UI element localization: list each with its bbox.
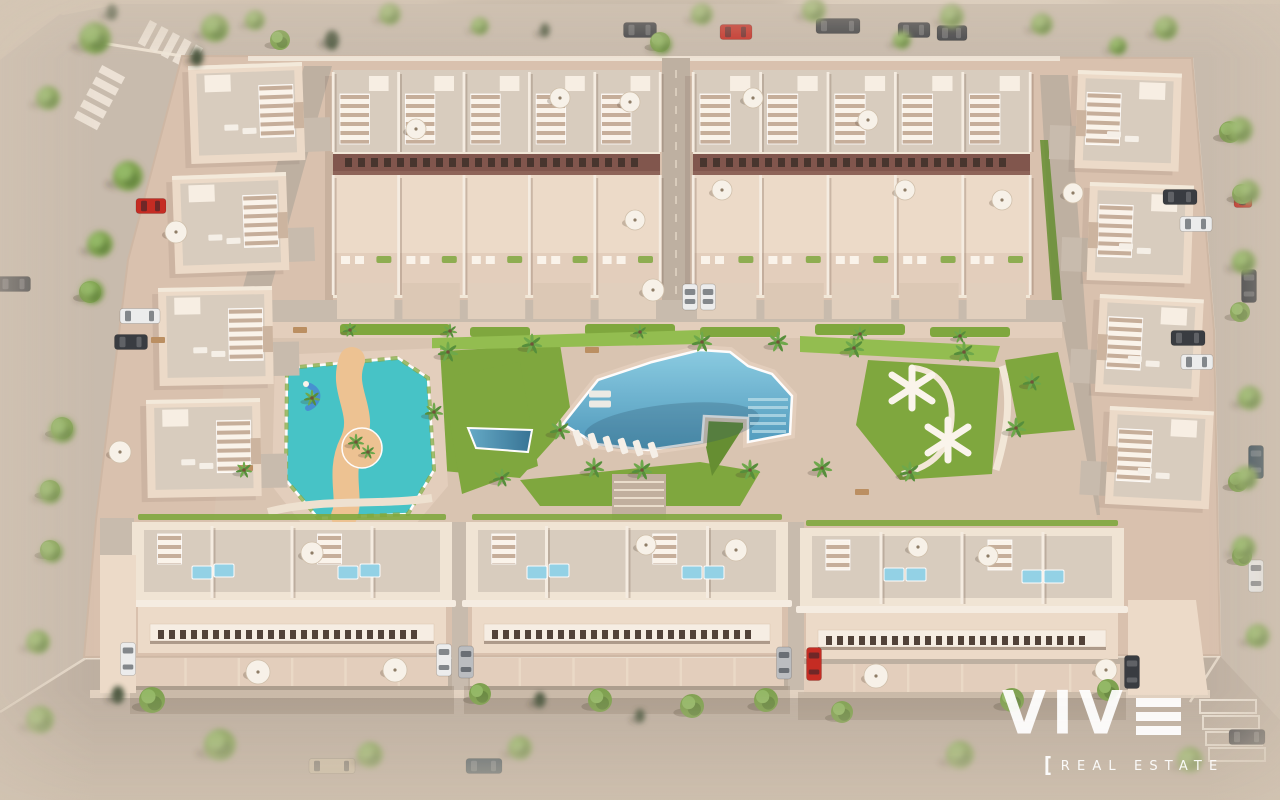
- brand-tagline: REAL ESTATE: [1061, 759, 1225, 774]
- brand-watermark: VIV [ REAL ESTATE: [1002, 686, 1222, 776]
- brand-stylized-e-icon: [1136, 698, 1181, 735]
- brand-row: VIV: [1002, 686, 1222, 743]
- brand-letters: VIV: [1002, 685, 1129, 744]
- tagline-row: [ REAL ESTATE: [1044, 756, 1222, 776]
- tagline-bracket: [: [1044, 754, 1052, 779]
- aerial-render: VIV [ REAL ESTATE: [0, 0, 1280, 800]
